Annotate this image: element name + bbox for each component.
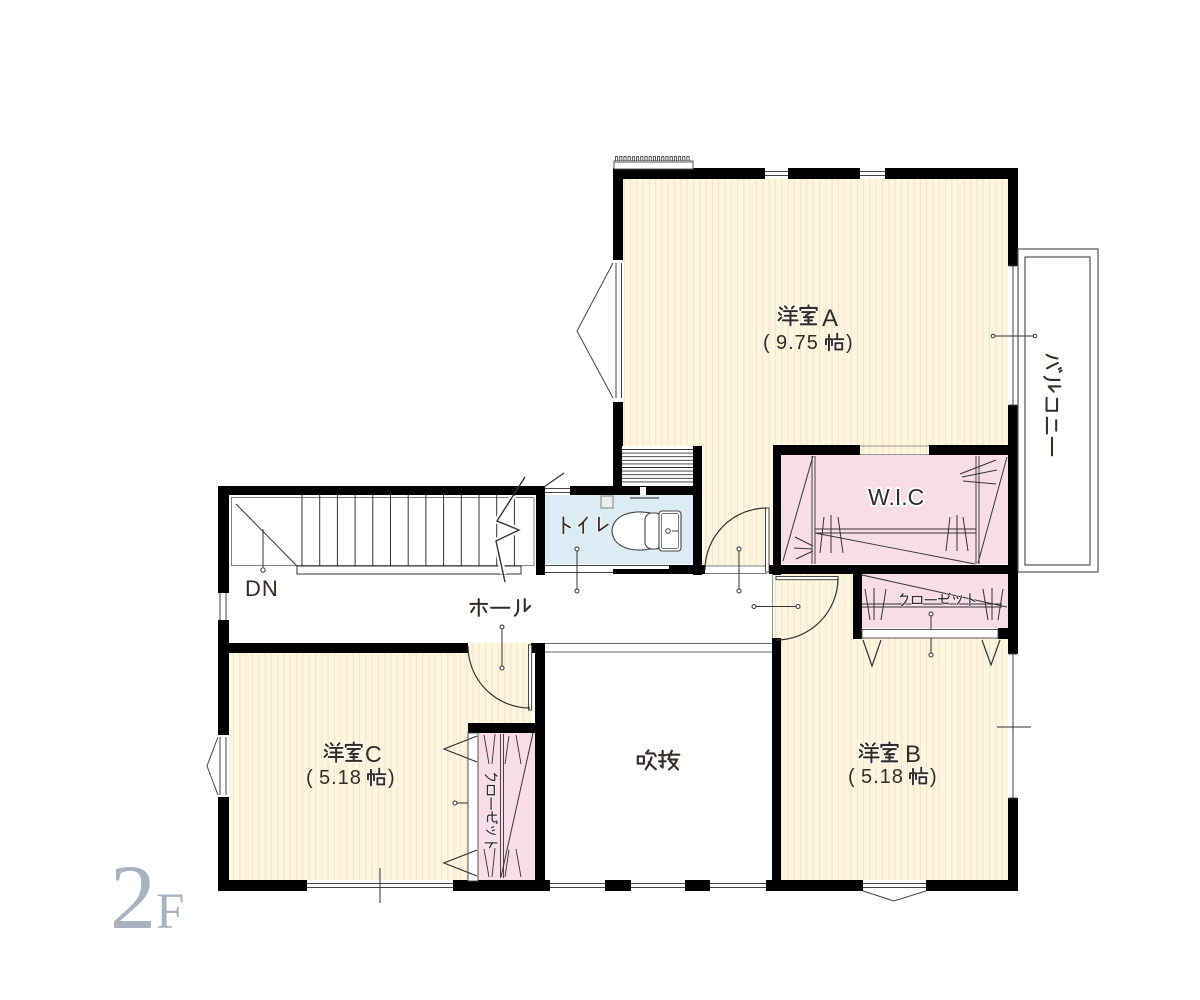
svg-text:2F: 2F	[110, 846, 184, 948]
svg-text:(: (	[848, 766, 855, 788]
svg-text:): )	[846, 332, 853, 354]
svg-text:W.I.C: W.I.C	[868, 484, 924, 510]
svg-text:5.18: 5.18	[319, 767, 362, 789]
svg-text:): )	[388, 767, 395, 789]
svg-text:9.75: 9.75	[776, 332, 819, 354]
svg-text:(: (	[306, 767, 313, 789]
svg-text:DN: DN	[245, 576, 279, 601]
svg-text:B: B	[905, 741, 921, 768]
svg-text:C: C	[365, 741, 382, 767]
svg-text:): )	[930, 766, 937, 788]
svg-text:A: A	[822, 305, 838, 332]
svg-text:(: (	[763, 332, 770, 354]
svg-text:5.18: 5.18	[861, 766, 904, 788]
